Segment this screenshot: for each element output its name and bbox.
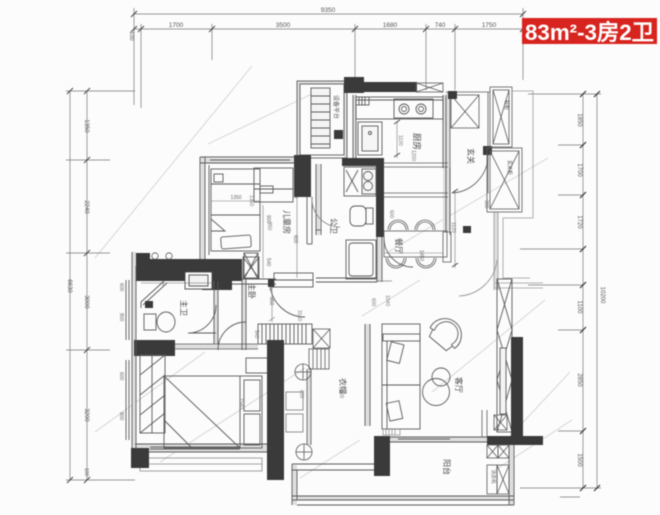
svg-text:公卫: 公卫 [329,218,338,234]
svg-text:6630: 6630 [66,279,72,293]
svg-text:1720: 1720 [576,215,582,229]
svg-text:儿童房: 儿童房 [282,210,292,234]
svg-text:1700: 1700 [169,22,184,29]
svg-text:1680: 1680 [383,22,398,29]
svg-text:600: 600 [292,235,298,244]
svg-text:3140: 3140 [296,310,302,321]
svg-text:600: 600 [118,283,124,292]
svg-text:主卧: 主卧 [247,283,257,299]
svg-text:850: 850 [266,222,272,231]
svg-text:600: 600 [370,298,376,307]
svg-text:1750: 1750 [482,22,497,29]
svg-text:9350: 9350 [321,7,336,14]
svg-text:1350: 1350 [83,119,89,133]
svg-text:3500: 3500 [276,22,291,29]
svg-text:玄关柜: 玄关柜 [506,160,513,175]
svg-text:83m²-3房2卫: 83m²-3房2卫 [525,20,654,45]
svg-text:10200: 10200 [599,287,605,304]
svg-text:1200: 1200 [410,150,416,161]
svg-text:1100: 1100 [397,135,403,146]
svg-text:100: 100 [83,468,89,477]
svg-text:300: 300 [483,200,489,209]
svg-text:3200: 3200 [83,408,89,422]
svg-text:600: 600 [298,390,304,399]
svg-text:600: 600 [388,210,394,219]
svg-text:客厅: 客厅 [454,377,464,393]
svg-text:玄关: 玄关 [466,148,476,164]
svg-text:540: 540 [265,258,271,267]
svg-text:主卫: 主卫 [179,300,189,316]
svg-text:设备平台: 设备平台 [332,95,340,119]
svg-text:厨房: 厨房 [412,133,422,150]
svg-text:2240: 2240 [83,200,89,214]
svg-text:1100: 1100 [576,301,582,315]
svg-text:540: 540 [253,330,259,339]
svg-text:1540: 1540 [238,398,244,409]
svg-text:800: 800 [118,412,124,421]
svg-text:洗衣机: 洗衣机 [490,470,497,484]
svg-text:餐厅: 餐厅 [394,238,403,254]
svg-text:1120: 1120 [450,222,456,233]
svg-text:阳台: 阳台 [442,459,452,475]
svg-text:600: 600 [118,372,124,381]
svg-text:1850: 1850 [576,113,582,127]
svg-text:900: 900 [338,390,344,399]
svg-text:100: 100 [128,31,134,40]
svg-text:1040: 1040 [384,295,390,306]
svg-text:1350: 1350 [248,195,254,206]
svg-text:鞋柜: 鞋柜 [503,100,510,110]
svg-text:1500: 1500 [576,453,582,467]
svg-text:2850: 2850 [576,373,582,387]
svg-text:800: 800 [118,313,124,322]
svg-text:1700: 1700 [576,163,582,177]
svg-text:1350: 1350 [230,195,241,201]
svg-text:1450: 1450 [418,250,424,261]
svg-text:740: 740 [435,22,446,29]
svg-text:850: 850 [268,297,274,306]
svg-text:3000: 3000 [83,295,89,309]
